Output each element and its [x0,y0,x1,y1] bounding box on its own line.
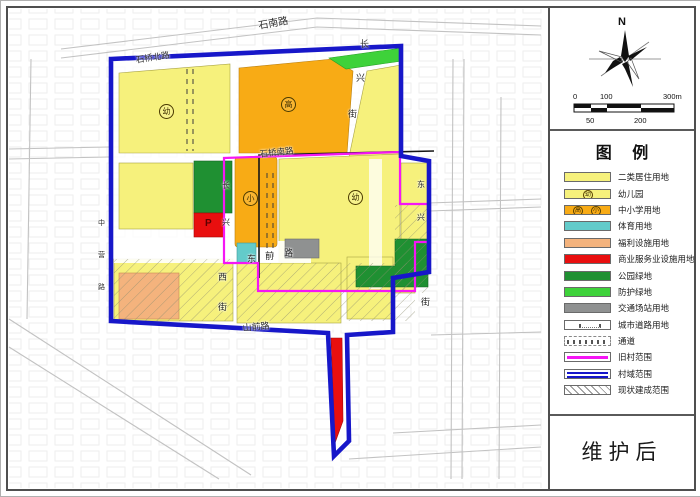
legend-item: 防护绿地 [550,284,694,300]
legend-swatch [564,303,611,313]
legend-badge: 幼 [583,190,593,199]
zone-school-high [239,59,353,153]
legend-label: 村域范围 [618,368,652,380]
legend-swatch [564,271,611,281]
zone-commercial-p [194,213,224,237]
legend-item: 福利设施用地 [550,235,694,251]
scale-label-200: 200 [634,116,647,125]
legend-item: 幼幼儿园 [550,185,694,201]
compass-rose-icon [550,28,692,90]
legend-label: 旧村范围 [618,351,652,363]
legend-swatch: 幼 [564,189,611,199]
north-label: N [550,16,694,28]
legend-item: 村域范围 [550,366,694,382]
scale-label-100: 100 [600,92,613,101]
map-panel: N 0 100 300m [548,8,694,489]
legend-swatch [564,320,611,330]
legend-label: 中小学用地 [618,204,661,216]
zone-sports [237,243,256,263]
legend-label: 幼儿园 [618,188,644,200]
legend-swatch [564,172,611,182]
legend-item: 通道 [550,333,694,349]
legend-label: 二类居住用地 [618,171,669,183]
legend-swatch: 高小 [564,205,611,215]
zone-transport [285,239,319,258]
zone-park-green [194,161,232,213]
legend-list: 二类居住用地幼幼儿园高小中小学用地体育用地福利设施用地商业服务业设施用地公园绿地… [550,169,694,398]
legend-item: 交通场站用地 [550,300,694,316]
legend-item: 高小中小学用地 [550,202,694,218]
legend-badge: 小 [591,206,601,215]
zone-residential-b [119,163,193,229]
legend-title: 图 例 [558,139,694,163]
legend-label: 现状建成范围 [618,384,669,396]
legend-item: 旧村范围 [550,349,694,365]
legend-item: 城市道路用地 [550,317,694,333]
plan-sheet: 石南路石桥北路长兴街石桥南路长兴东兴街东前路西街山前路中营路 幼高小幼 P N [0,0,700,497]
legend-item: 公园绿地 [550,267,694,283]
zone-residential-a [119,64,230,153]
sheet-title: 维护后 [582,436,663,466]
legend-label: 福利设施用地 [618,237,669,249]
legend-label: 公园绿地 [618,270,652,282]
title-section: 维护后 [550,416,694,485]
compass-scale-section: N 0 100 300m [550,8,694,131]
scale-label-300: 300m [663,92,682,101]
legend-label: 商业服务业设施用地 [618,253,695,265]
zone-school-primary [235,157,277,247]
legend-swatch [564,254,611,264]
legend-swatch [564,385,611,395]
legend-swatch [564,287,611,297]
legend-swatch [564,238,611,248]
legend-label: 通道 [618,335,635,347]
legend-label: 交通场站用地 [618,302,669,314]
legend-swatch [564,221,611,231]
legend-swatch [564,352,611,362]
legend-item: 体育用地 [550,218,694,234]
legend-swatch [564,336,611,346]
scale-label-50: 50 [586,116,594,125]
legend-item: 二类居住用地 [550,169,694,185]
scale-bar: 0 100 300m 50 200 [550,92,694,130]
scale-bar-graphic [550,102,692,114]
legend-label: 体育用地 [618,220,652,232]
scale-label-0: 0 [573,92,577,101]
legend-section: 图 例 二类居住用地幼幼儿园高小中小学用地体育用地福利设施用地商业服务业设施用地… [550,131,694,416]
legend-label: 防护绿地 [618,286,652,298]
legend-badge: 高 [573,206,583,215]
legend-label: 城市道路用地 [618,319,669,331]
legend-swatch [564,369,611,379]
legend-item: 商业服务业设施用地 [550,251,694,267]
legend-item: 现状建成范围 [550,382,694,398]
